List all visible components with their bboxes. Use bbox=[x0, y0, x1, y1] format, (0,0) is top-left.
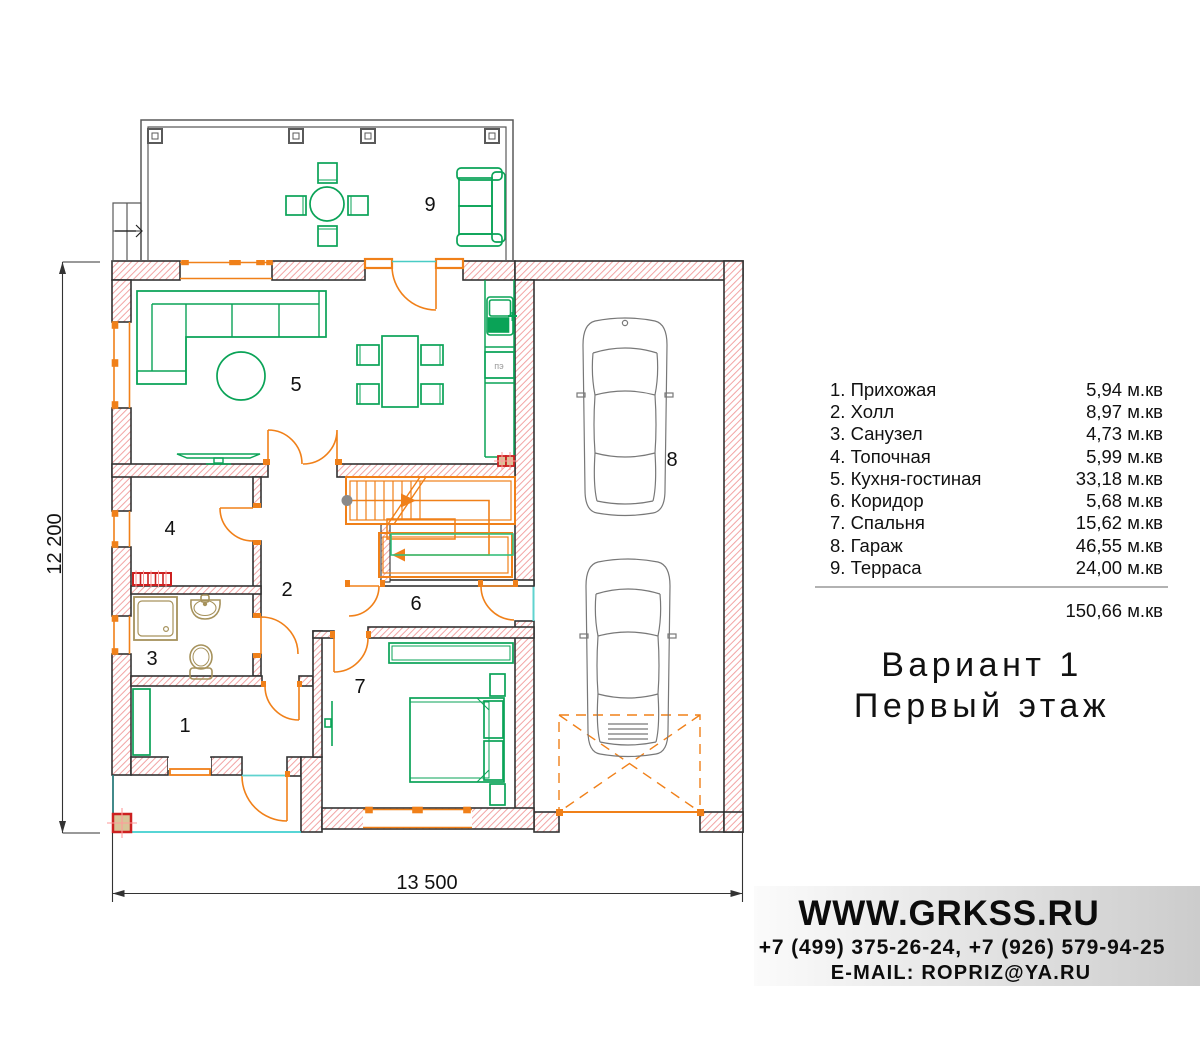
svg-text:9. Терраса: 9. Терраса bbox=[830, 557, 922, 578]
svg-text:150,66 м.кв: 150,66 м.кв bbox=[1065, 600, 1163, 621]
svg-text:E-MAIL: ROPRIZ@YA.RU: E-MAIL: ROPRIZ@YA.RU bbox=[831, 962, 1092, 984]
svg-text:13 500: 13 500 bbox=[396, 872, 457, 894]
svg-text:3. Санузел: 3. Санузел bbox=[830, 423, 923, 444]
svg-text:12 200: 12 200 bbox=[44, 513, 66, 574]
svg-text:24,00 м.кв: 24,00 м.кв bbox=[1076, 557, 1163, 578]
svg-text:+7 (499) 375-26-24, +7 (926) 5: +7 (499) 375-26-24, +7 (926) 579-94-25 bbox=[759, 936, 1166, 959]
svg-text:4: 4 bbox=[164, 518, 175, 540]
svg-text:пэ: пэ bbox=[494, 361, 504, 371]
svg-text:WWW.GRKSS.RU: WWW.GRKSS.RU bbox=[798, 894, 1099, 933]
svg-text:5,68 м.кв: 5,68 м.кв bbox=[1086, 490, 1163, 511]
svg-text:9: 9 bbox=[424, 194, 435, 216]
svg-text:5. Кухня-гостиная: 5. Кухня-гостиная bbox=[830, 468, 981, 489]
svg-text:4. Топочная: 4. Топочная bbox=[830, 446, 931, 467]
svg-text:5: 5 bbox=[290, 374, 301, 396]
svg-text:1: 1 bbox=[179, 715, 190, 737]
svg-text:5,94 м.кв: 5,94 м.кв bbox=[1086, 379, 1163, 400]
svg-text:8: 8 bbox=[666, 449, 677, 471]
svg-text:8. Гараж: 8. Гараж bbox=[830, 535, 903, 556]
svg-text:3: 3 bbox=[146, 648, 157, 670]
svg-text:Первый этаж: Первый этаж bbox=[854, 687, 1110, 725]
svg-text:1. Прихожая: 1. Прихожая bbox=[830, 379, 936, 400]
svg-text:8,97 м.кв: 8,97 м.кв bbox=[1086, 401, 1163, 422]
svg-text:7: 7 bbox=[354, 676, 365, 698]
svg-text:7. Спальня: 7. Спальня bbox=[830, 512, 925, 533]
svg-text:33,18 м.кв: 33,18 м.кв bbox=[1076, 468, 1163, 489]
svg-text:2: 2 bbox=[281, 579, 292, 601]
svg-text:4,73 м.кв: 4,73 м.кв bbox=[1086, 423, 1163, 444]
svg-text:5,99 м.кв: 5,99 м.кв bbox=[1086, 446, 1163, 467]
svg-text:6: 6 bbox=[410, 593, 421, 615]
svg-text:2. Холл: 2. Холл bbox=[830, 401, 894, 422]
svg-text:15,62 м.кв: 15,62 м.кв bbox=[1076, 512, 1163, 533]
svg-text:Вариант 1: Вариант 1 bbox=[881, 646, 1083, 684]
svg-text:6. Коридор: 6. Коридор bbox=[830, 490, 924, 511]
svg-text:46,55 м.кв: 46,55 м.кв bbox=[1076, 535, 1163, 556]
